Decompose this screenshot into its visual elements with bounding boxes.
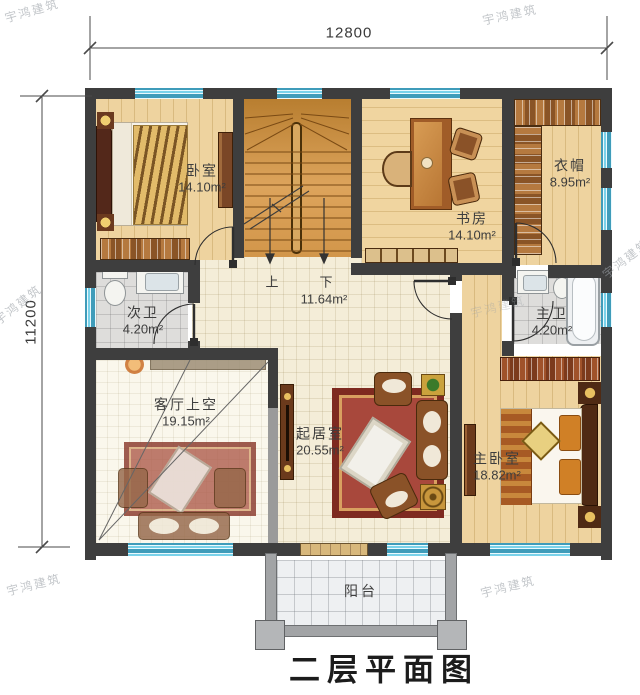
wall-study-bottom	[351, 263, 502, 275]
cushion	[149, 518, 179, 534]
master-bedroom-label: 主卧室 18.82m²	[473, 449, 521, 484]
master-bed-headboard	[580, 404, 598, 506]
bathtub-inner	[572, 273, 596, 341]
nightstand	[578, 506, 602, 528]
void-sofa	[138, 512, 230, 540]
void-armchair	[118, 468, 148, 508]
study-name: 书房	[448, 209, 496, 227]
void-railing	[268, 408, 278, 543]
cloakroom-name: 衣帽	[550, 156, 590, 174]
cushion	[423, 445, 441, 467]
watermark: 宇鸿建筑	[5, 569, 63, 599]
stair-up-label: 上	[265, 272, 278, 291]
cabinet-knob	[284, 465, 291, 472]
nightstand	[578, 382, 602, 404]
pillow	[559, 459, 581, 495]
bookshelf	[365, 248, 458, 263]
master-bedroom-area: 18.82m²	[473, 468, 521, 485]
sink-basin	[523, 275, 547, 291]
cloakroom-label: 衣帽 8.95m²	[550, 156, 590, 191]
office-chair	[382, 151, 412, 187]
tv	[286, 405, 289, 461]
bedside-lamp	[97, 214, 114, 231]
wall-void-divider-pier	[268, 360, 278, 408]
wall-void-top	[85, 348, 278, 360]
watermark: 宇鸿建筑	[481, 0, 539, 28]
bedroom-name: 卧室	[178, 161, 226, 179]
wall-stair-left	[233, 88, 244, 258]
bedroom-label: 卧室 14.10m²	[178, 161, 226, 196]
master-bedroom-name: 主卧室	[473, 449, 521, 467]
window-cloakroom-a	[601, 132, 612, 168]
bath-master-area: 4.20m²	[532, 323, 572, 340]
window-bath-master	[601, 293, 612, 327]
living-void-name: 客厅上空	[154, 395, 218, 413]
living-name: 起居室	[296, 424, 344, 442]
plan-title: 二层平面图	[289, 645, 479, 690]
balcony-door-sill	[300, 543, 368, 556]
bed-headboard	[96, 126, 112, 222]
wall-bath2-right-a	[188, 260, 200, 303]
window-living-void	[128, 543, 233, 556]
window-bedroom	[135, 88, 203, 99]
master-wardrobe	[500, 357, 600, 381]
living-tv-cabinet	[280, 384, 294, 480]
cabinet-knob	[284, 393, 291, 400]
dimension-top-label: 12800	[326, 25, 373, 42]
stair-handrail	[291, 122, 302, 254]
wall-master-left-a	[450, 263, 462, 281]
bath-master-label: 主卫 4.20m²	[532, 304, 572, 339]
living-void-label: 客厅上空 19.15m²	[154, 395, 218, 430]
window-cloakroom-b	[601, 188, 612, 230]
bed	[112, 122, 188, 226]
window-stairwell	[277, 88, 322, 99]
cloakroom-area: 8.95m²	[550, 175, 590, 192]
bed-pillows	[113, 123, 132, 225]
cushion	[189, 518, 219, 534]
bedside-lamp	[97, 112, 114, 129]
wall-stair-right	[351, 88, 362, 258]
bath-master-name: 主卫	[532, 304, 572, 322]
cushion	[423, 411, 441, 433]
living-area: 20.55m²	[296, 443, 344, 460]
cloakroom-closet-left	[514, 126, 542, 255]
balcony-label: 阳台	[344, 581, 378, 601]
balcony-wall-bottom	[265, 625, 457, 637]
living-void-area: 19.15m²	[154, 414, 218, 431]
wall-bedroom-bottom	[85, 260, 192, 272]
cloakroom-closet-top	[514, 99, 601, 126]
study-area: 14.10m²	[448, 228, 496, 245]
window-master-bedroom	[490, 543, 570, 556]
pillow	[559, 415, 581, 451]
desk-lamp	[421, 157, 433, 169]
side-table	[420, 484, 446, 510]
floor-plan: 12800 11200 卧室 14.10m² 书房 14.10m² 衣帽 8.9…	[0, 0, 640, 695]
window-living	[387, 543, 428, 556]
void-armchair	[214, 468, 246, 508]
cushion	[382, 379, 406, 393]
hallway-area: 11.64m²	[301, 292, 348, 307]
bath-second-name: 次卫	[123, 303, 163, 321]
bedroom-wardrobe	[100, 238, 190, 260]
stair-down-label: 下	[319, 272, 332, 291]
sink-basin	[145, 273, 179, 291]
vanity-sink	[517, 270, 549, 294]
wall-bath-master-stub	[502, 341, 514, 356]
bath-second-area: 4.20m²	[123, 322, 163, 339]
guest-chair	[447, 171, 481, 206]
bedroom-area: 14.10m²	[178, 180, 226, 197]
watermark: 宇鸿建筑	[3, 0, 62, 26]
plant	[421, 374, 445, 396]
window-study	[390, 88, 460, 99]
watermark: 宇鸿建筑	[479, 571, 537, 601]
balcony-post-left	[255, 620, 285, 650]
living-armchair-top	[374, 372, 412, 406]
window-bath-second	[85, 288, 96, 327]
living-sofa-right	[416, 400, 448, 480]
toilet	[104, 280, 126, 306]
study-label: 书房 14.10m²	[448, 209, 496, 244]
wall-master-left-b	[450, 313, 462, 543]
living-label: 起居室 20.55m²	[296, 424, 344, 459]
study-desk	[410, 118, 452, 210]
bath-second-label: 次卫 4.20m²	[123, 303, 163, 338]
wall-cloak-bottom-a	[502, 265, 516, 278]
cushion	[383, 488, 411, 511]
